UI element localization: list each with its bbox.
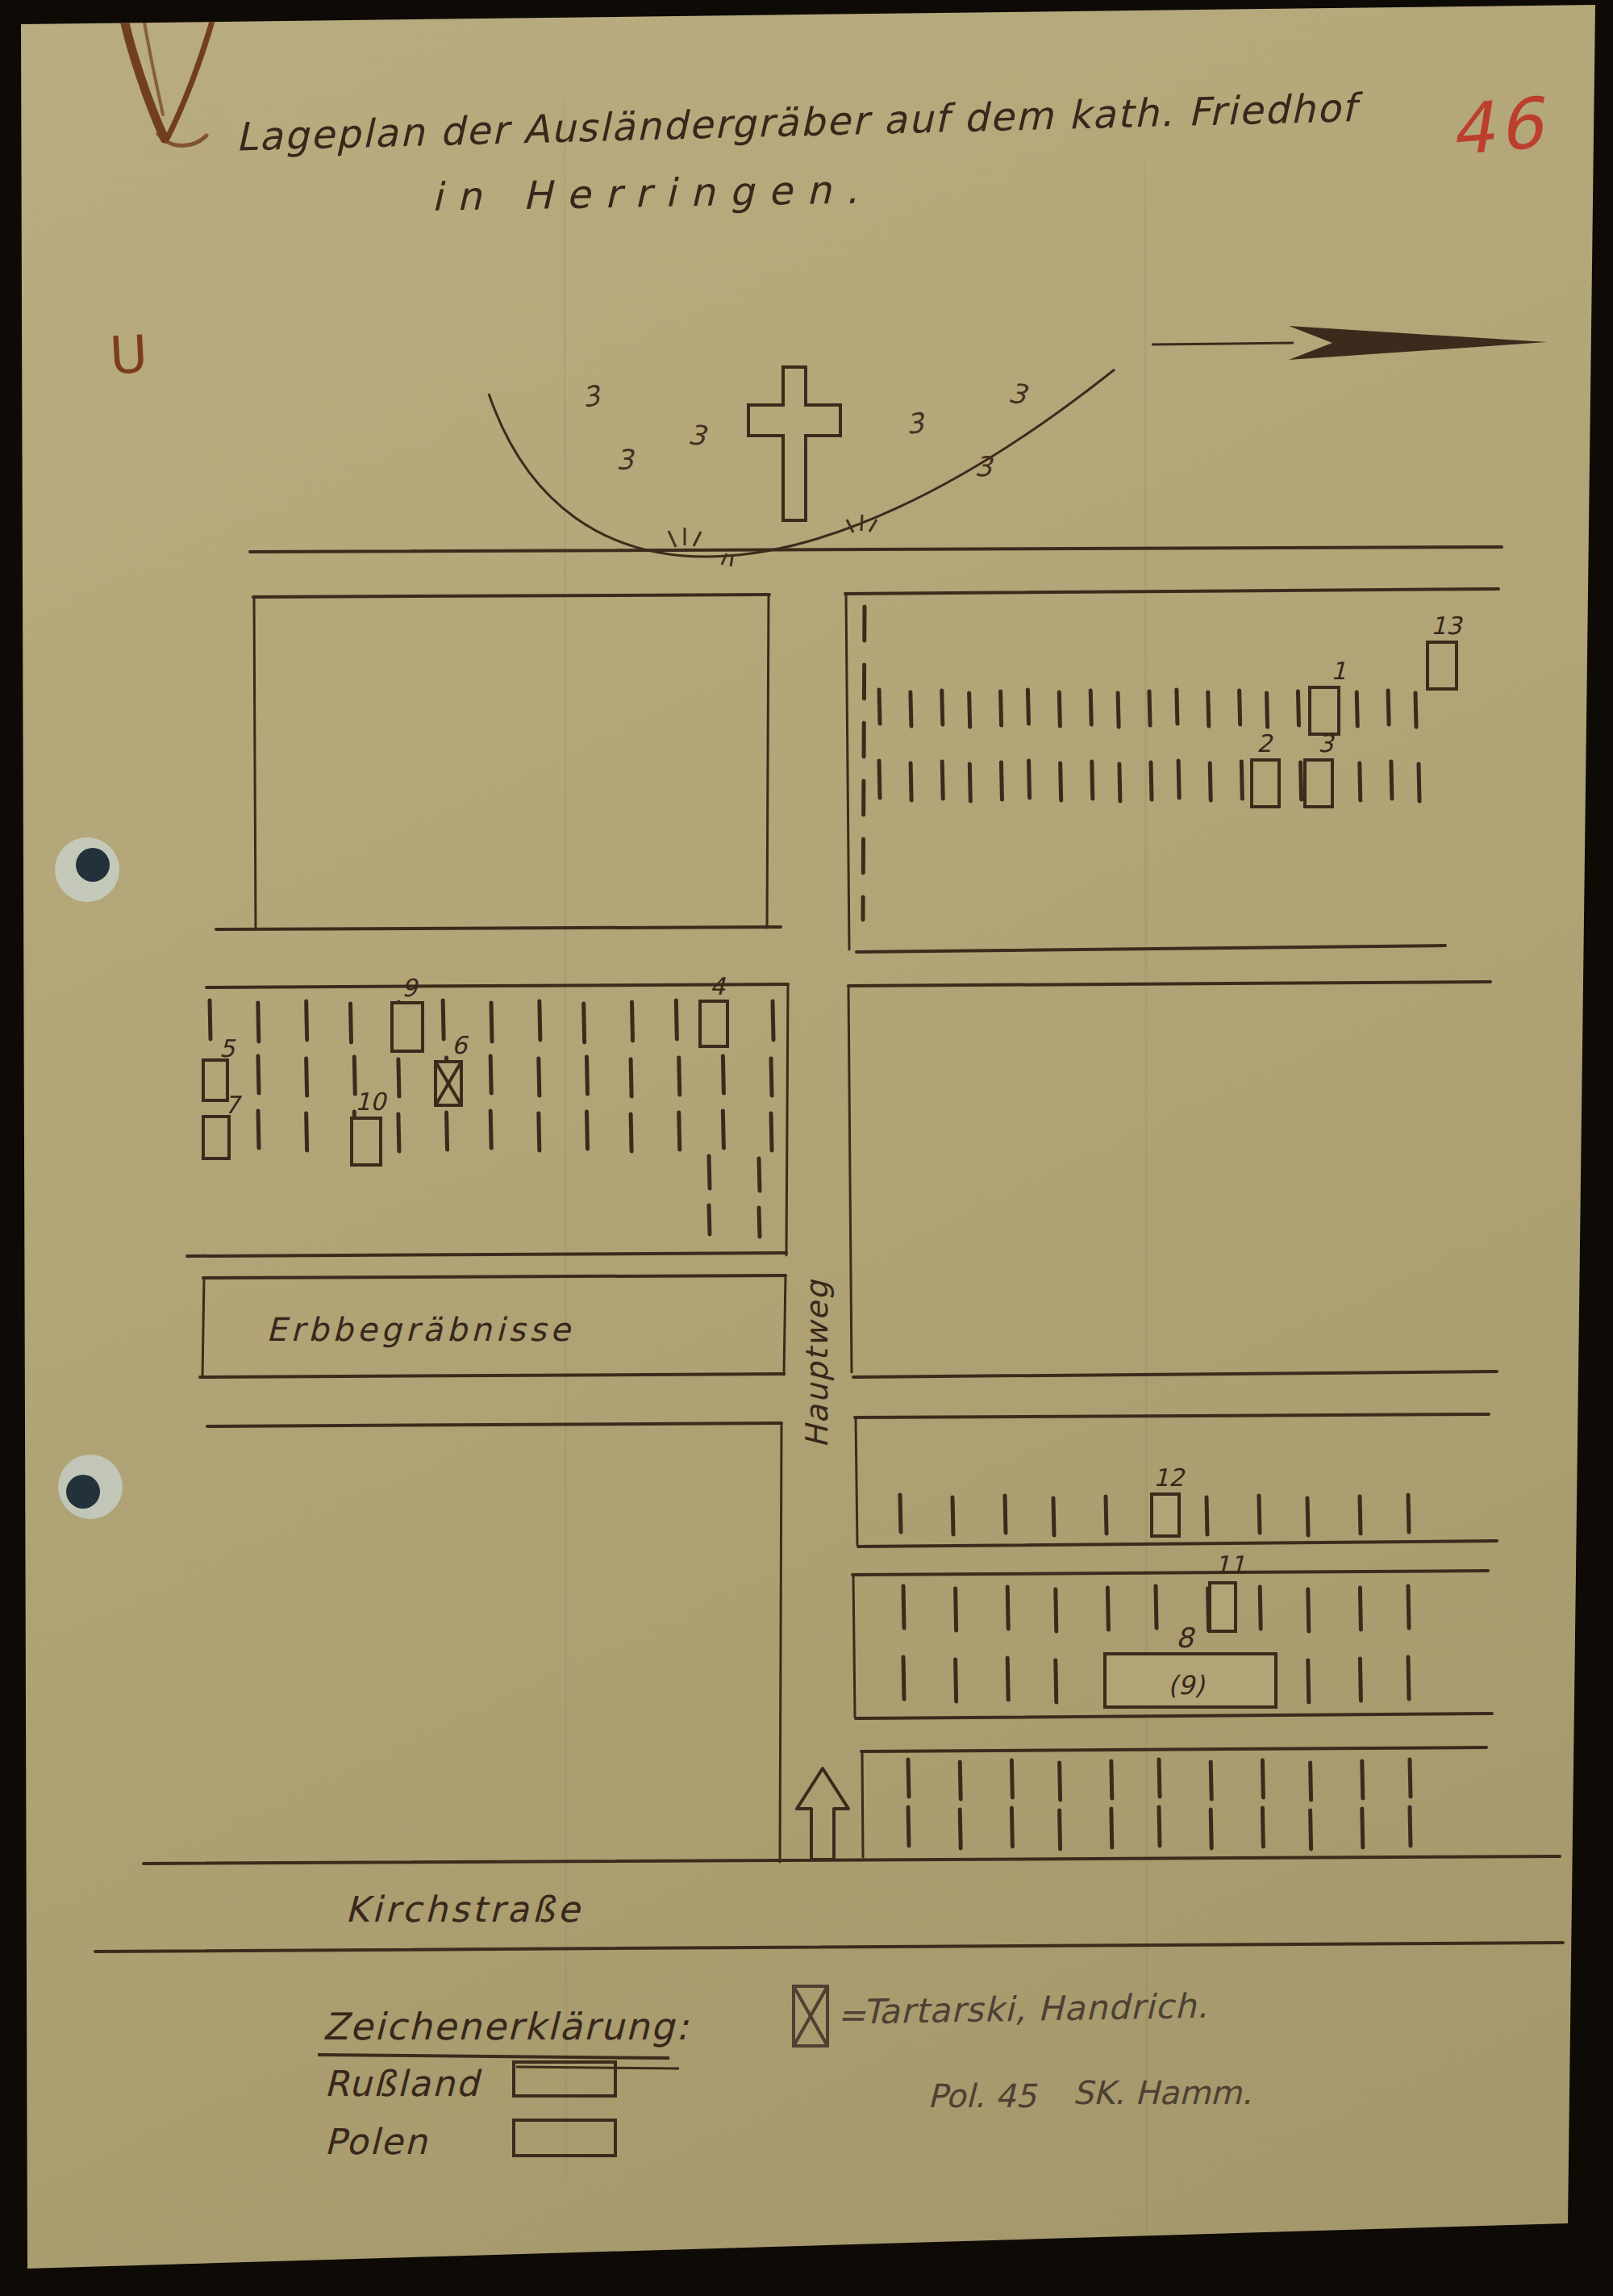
- grave-tick: [879, 690, 880, 724]
- grave-tick: [1262, 1760, 1263, 1797]
- entrance-arrow-icon: [797, 1768, 848, 1860]
- bush-icon: 3: [904, 406, 927, 440]
- bush-icon: 3: [579, 378, 604, 414]
- grave-tick: [1298, 691, 1298, 725]
- grave-tick: [1419, 764, 1419, 801]
- bush-icon: 3: [1007, 376, 1031, 411]
- grave-number: 12: [1153, 1463, 1186, 1492]
- grave-tick: [447, 1113, 448, 1150]
- grave-tick: [539, 1113, 540, 1150]
- grave-number: 3: [1318, 729, 1335, 758]
- cemetery-cross-icon: [748, 367, 840, 520]
- grave-tick: [1060, 1763, 1061, 1800]
- grave-tick: [1211, 1762, 1211, 1799]
- grave-tick: [900, 1495, 901, 1532]
- grave-tick: [1060, 1810, 1061, 1849]
- grave-tick: [679, 1058, 680, 1095]
- grave-box-10: 10: [352, 1087, 388, 1165]
- grave-tick: [1357, 692, 1357, 726]
- grave-tick: [210, 1000, 210, 1039]
- grave-tick: [759, 1208, 760, 1237]
- grave-tick: [1111, 1761, 1112, 1798]
- grave-tick: [1056, 1589, 1057, 1631]
- grave-tick: [1027, 690, 1028, 724]
- legend-entry-poland: Polen: [324, 2121, 428, 2162]
- legend-note-sk-hamm: SK. Hamm.: [1073, 2074, 1252, 2111]
- grave-tick: [1178, 761, 1179, 798]
- grave-number: 4: [710, 972, 726, 1000]
- grave-tick: [586, 1112, 587, 1149]
- grave-number: 2: [1257, 729, 1273, 758]
- direction-arrow-icon: [1152, 326, 1547, 360]
- grave-tick: [679, 1113, 680, 1150]
- grave-tick: [1362, 1809, 1363, 1847]
- legend-entry-russia: Rußland: [324, 2063, 482, 2104]
- grass-tuft: [669, 515, 877, 566]
- grave-tick: [351, 1004, 352, 1042]
- grave-tick: [491, 1003, 492, 1042]
- grave-tick: [1311, 1810, 1311, 1849]
- grave-tick: [903, 1657, 904, 1699]
- grave-tick: [540, 1001, 540, 1040]
- grave-tick: [960, 1810, 961, 1848]
- grave-number: 7: [224, 1091, 242, 1119]
- grave-tick: [1007, 1658, 1008, 1700]
- grave-tick: [759, 1158, 760, 1191]
- grave-tick: [631, 1114, 631, 1151]
- grave-tick: [1408, 1495, 1409, 1532]
- grave-tick: [960, 1762, 961, 1799]
- grave-tick: [911, 692, 911, 726]
- grave-tick: [1267, 693, 1268, 727]
- grave-box-1: 1: [1310, 657, 1346, 734]
- grave-tick: [1391, 762, 1392, 799]
- grave-tick: [306, 1001, 307, 1040]
- grave-tick: [1151, 762, 1152, 799]
- paper-crease: [565, 97, 1147, 2243]
- numbered-grave-boxes: 1312394567101211: [203, 612, 1463, 1631]
- grave-tick: [723, 1111, 723, 1148]
- grave-tick: [1410, 1760, 1411, 1797]
- grave-tick: [490, 1111, 491, 1148]
- grave-tick: [1119, 764, 1120, 801]
- grave-tick: [676, 1000, 677, 1039]
- grave-tick: [632, 1002, 633, 1041]
- grave-tick: [1056, 1660, 1057, 1702]
- grave-tick: [1301, 762, 1302, 799]
- grave-tick: [1408, 1586, 1409, 1628]
- grave-tick: [398, 1059, 399, 1096]
- grave-tick: [1107, 1588, 1108, 1630]
- legend-title: Zeichenerklärung:: [323, 2005, 690, 2048]
- legend-symbol-poland: [514, 2120, 615, 2156]
- legend-note-pol45: Pol. 45: [927, 2077, 1038, 2114]
- grave-tick: [1159, 1807, 1160, 1846]
- grave-tick: [1011, 1760, 1012, 1797]
- grave-tick: [631, 1059, 631, 1096]
- grave-number: 6: [452, 1031, 469, 1059]
- grave-tick: [1156, 1586, 1157, 1628]
- grave-tick: [1007, 1587, 1008, 1629]
- grave-tick: [1111, 1809, 1112, 1847]
- grave-number: 5: [219, 1034, 236, 1062]
- grave-tick: [1408, 1657, 1409, 1699]
- page-title-line1: Lageplan der Ausländergräber auf dem kat…: [235, 85, 1364, 160]
- grave-tick: [709, 1156, 710, 1188]
- grave-tick: [969, 693, 970, 727]
- grave-tick: [1388, 691, 1389, 724]
- grave-tick: [1005, 1496, 1006, 1533]
- grave-number: 8: [1176, 1622, 1196, 1654]
- grave-tick: [1149, 691, 1150, 725]
- bush-icon: 3: [974, 450, 994, 482]
- collective-grave-8: 8 (9): [1105, 1622, 1276, 1707]
- corner-pen-mark-u: U: [108, 324, 149, 386]
- grave-tick: [1311, 1763, 1311, 1800]
- grave-tick: [1207, 1497, 1207, 1534]
- bush-icon: 3: [615, 443, 636, 476]
- grave-tick: [1360, 763, 1361, 800]
- label-hauptweg: Hauptweg: [799, 1279, 835, 1448]
- grave-tick: [1001, 762, 1002, 799]
- grave-tick: [1308, 1589, 1309, 1631]
- paper-sheet: Lageplan der Ausländergräber auf dem kat…: [0, 0, 1613, 2296]
- label-kirchstrasse: Kirchstraße: [345, 1889, 582, 1930]
- grave-tick: [306, 1058, 307, 1096]
- grave-box-2: 2: [1252, 729, 1279, 807]
- grave-tick: [956, 1659, 957, 1701]
- paper-tear-mark: [184, 0, 221, 13]
- grave-tick: [1208, 692, 1209, 726]
- grave-number: 11: [1215, 1551, 1245, 1579]
- grave-tick: [956, 1588, 957, 1630]
- grave-number-inside: (9): [1168, 1670, 1206, 1701]
- grave-tick: [908, 1760, 909, 1797]
- legend-title-underline-2: [516, 2067, 679, 2068]
- grave-tick: [723, 1056, 723, 1093]
- grave-number: 9: [402, 974, 419, 1002]
- archive-number-stamp: 46: [1446, 81, 1551, 170]
- grave-tick: [1029, 761, 1030, 798]
- legend: Zeichenerklärung: Rußland Polen = Tartar…: [318, 1986, 1252, 2162]
- grave-tick: [586, 1057, 587, 1094]
- grave-tick: [771, 1058, 772, 1096]
- grave-tick: [1001, 691, 1002, 725]
- grave-tick: [1262, 1808, 1263, 1847]
- grave-number: 1: [1331, 657, 1346, 685]
- grave-tick: [879, 761, 880, 798]
- grave-tick: [1090, 691, 1091, 724]
- grave-box-11: 11: [1210, 1551, 1245, 1631]
- grave-tick: [443, 1000, 444, 1039]
- pen-mark-v: [121, 4, 216, 146]
- grave-tick: [258, 1111, 259, 1148]
- grave-tick: [1360, 1588, 1361, 1630]
- grave-tick: [969, 764, 970, 801]
- grave-tick: [1240, 691, 1240, 724]
- grave-tick: [709, 1205, 710, 1234]
- grave-tick: [1011, 1808, 1012, 1847]
- grave-tick: [1410, 1807, 1411, 1846]
- grave-tick: [952, 1497, 953, 1534]
- grave-box-12: 12: [1152, 1463, 1186, 1536]
- grave-tick: [1241, 762, 1242, 799]
- grave-tick: [1177, 690, 1177, 724]
- grave-tick: [1259, 1496, 1260, 1533]
- grave-tick: [1260, 1587, 1261, 1629]
- punch-hole: [55, 837, 119, 902]
- grave-tick: [1308, 1660, 1309, 1702]
- grave-tick: [1092, 762, 1093, 799]
- grave-box-6: 6: [436, 1031, 469, 1105]
- grave-tick: [911, 763, 911, 800]
- grave-tick: [942, 762, 943, 799]
- grave-tick: [1211, 1810, 1211, 1848]
- grave-tick: [1118, 693, 1119, 727]
- grave-tick: [584, 1004, 585, 1042]
- map-outline: [95, 547, 1563, 1952]
- grave-tick: [1053, 1498, 1054, 1535]
- grave-tick: [490, 1056, 491, 1093]
- label-erbbegraebnisse: Erbbegräbnisse: [266, 1311, 574, 1348]
- site-plan-drawing: Lageplan der Ausländergräber auf dem kat…: [0, 0, 1613, 2296]
- grave-number: 10: [355, 1087, 388, 1116]
- grave-tick: [539, 1058, 540, 1096]
- grave-tick: [1360, 1659, 1361, 1701]
- grave-tick: [1360, 1497, 1361, 1534]
- scanned-document-page: { "page": { "archive_number": "46", "tit…: [0, 0, 1613, 2296]
- punch-hole: [58, 1455, 123, 1519]
- legend-crossed-box-symbol: [794, 1986, 827, 2046]
- legend-note-names: Tartarski, Handrich.: [862, 1986, 1208, 2031]
- grave-tick: [1061, 763, 1061, 800]
- grave-tick: [1059, 692, 1060, 726]
- grave-tick: [1362, 1761, 1363, 1798]
- grave-tick: [1210, 763, 1211, 800]
- grave-tick: [908, 1807, 909, 1846]
- grave-number: 13: [1431, 612, 1463, 640]
- grave-tick: [1106, 1497, 1107, 1534]
- bush-icon: 3: [686, 418, 709, 452]
- grave-tick: [1159, 1760, 1160, 1797]
- grave-tick: [771, 1113, 772, 1150]
- grave-tick: [398, 1114, 399, 1151]
- grave-tick: [258, 1056, 259, 1093]
- grave-tick: [258, 1003, 259, 1042]
- grave-tick: [1415, 693, 1416, 727]
- grave-tick: [773, 1001, 773, 1040]
- legend-title-underline: [318, 2055, 669, 2058]
- grave-tick: [306, 1113, 307, 1150]
- grave-box-13: 13: [1428, 612, 1463, 689]
- grave-tick: [903, 1586, 904, 1628]
- grave-tick: [942, 691, 943, 724]
- grave-tick: [1307, 1498, 1308, 1535]
- page-title-line2: in Herringen.: [431, 166, 873, 219]
- grave-box-3: 3: [1305, 729, 1335, 807]
